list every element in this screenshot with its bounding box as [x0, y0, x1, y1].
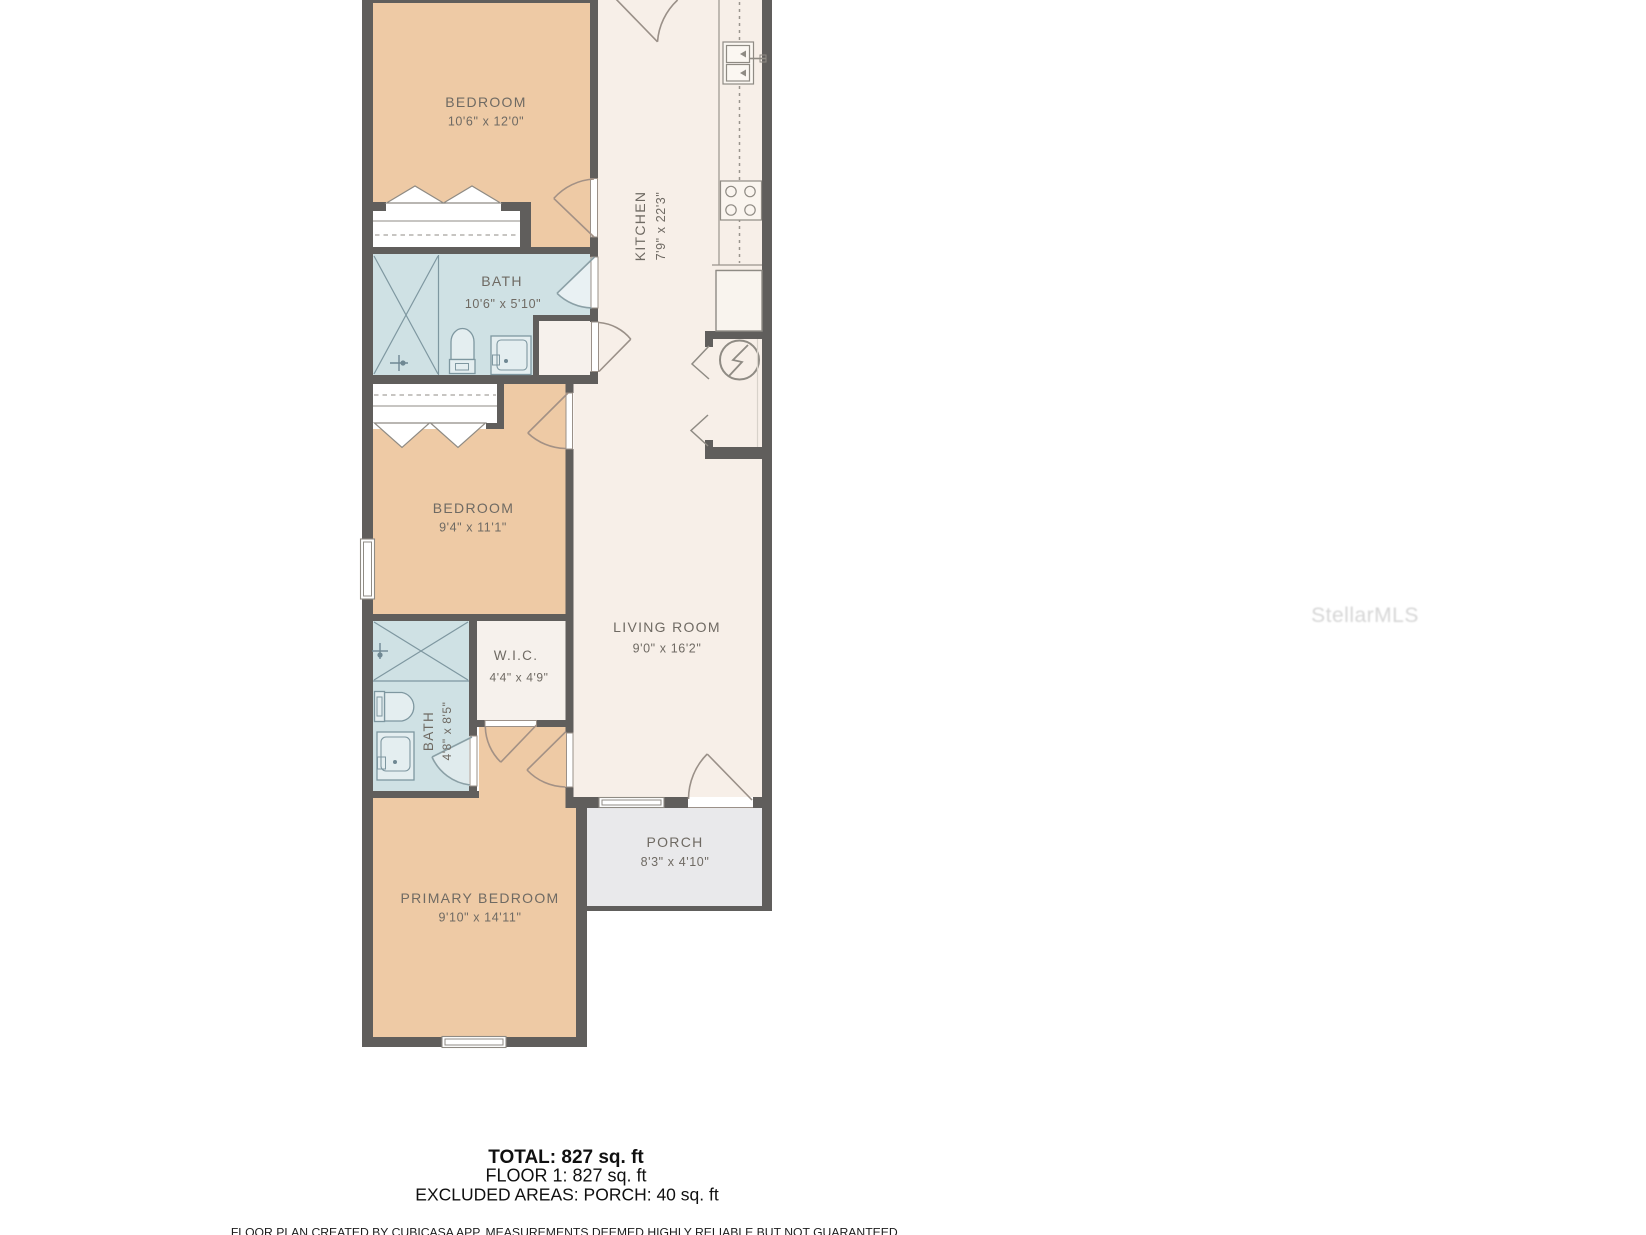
svg-text:9'0" x 16'2": 9'0" x 16'2" [633, 642, 702, 656]
svg-text:PORCH: PORCH [646, 834, 703, 850]
svg-text:FLOOR 1: 827 sq. ft: FLOOR 1: 827 sq. ft [485, 1166, 646, 1186]
svg-text:BEDROOM: BEDROOM [433, 500, 514, 516]
svg-text:7'9" x 22'3": 7'9" x 22'3" [654, 192, 668, 261]
svg-text:9'4" x 11'1": 9'4" x 11'1" [439, 521, 507, 535]
svg-text:FLOOR PLAN CREATED BY CUBICASA: FLOOR PLAN CREATED BY CUBICASA APP. MEAS… [231, 1226, 901, 1235]
svg-text:LIVING ROOM: LIVING ROOM [613, 619, 721, 635]
svg-text:StellarMLS: StellarMLS [1311, 604, 1419, 627]
svg-text:10'6" x 12'0": 10'6" x 12'0" [448, 115, 524, 129]
svg-text:BEDROOM: BEDROOM [445, 94, 526, 110]
svg-text:BATH: BATH [421, 711, 436, 751]
svg-text:4'4" x 4'9": 4'4" x 4'9" [489, 671, 548, 685]
svg-text:8'3" x 4'10": 8'3" x 4'10" [641, 855, 710, 869]
svg-text:9'10" x 14'11": 9'10" x 14'11" [439, 911, 522, 925]
svg-text:W.I.C.: W.I.C. [494, 648, 539, 663]
svg-text:KITCHEN: KITCHEN [632, 191, 648, 262]
svg-text:4'8" x 8'5": 4'8" x 8'5" [440, 701, 454, 760]
svg-text:PRIMARY BEDROOM: PRIMARY BEDROOM [400, 890, 559, 906]
svg-text:EXCLUDED AREAS: PORCH: 40 sq.: EXCLUDED AREAS: PORCH: 40 sq. ft [415, 1185, 719, 1205]
svg-text:10'6" x 5'10": 10'6" x 5'10" [465, 297, 541, 311]
svg-text:BATH: BATH [481, 273, 523, 289]
